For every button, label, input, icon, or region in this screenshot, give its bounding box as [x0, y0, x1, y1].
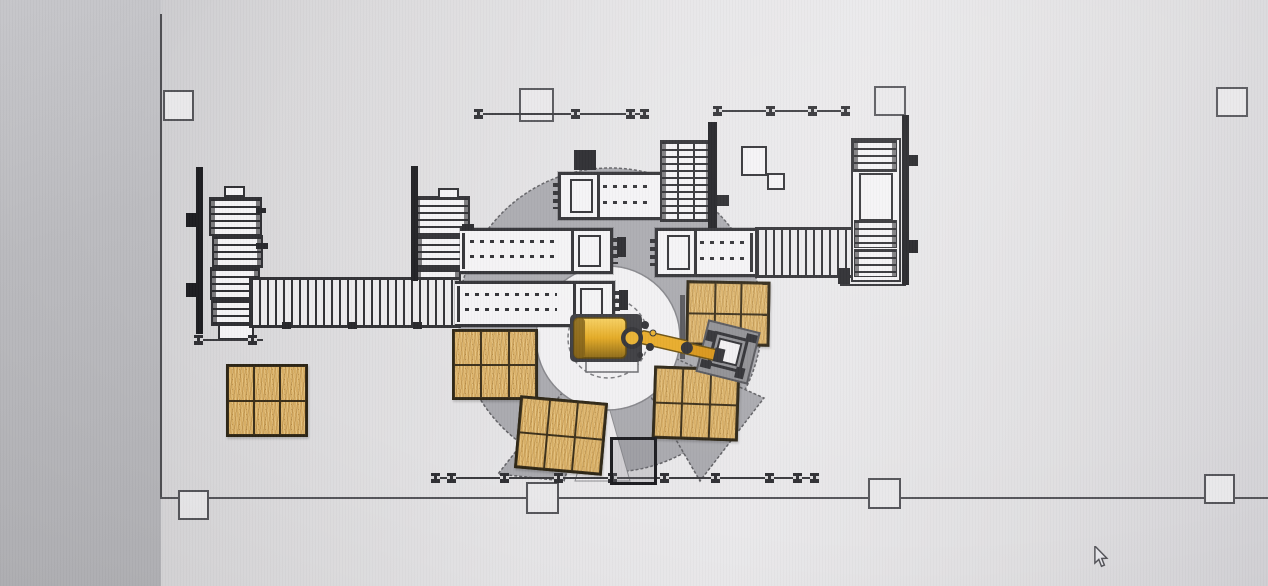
roller-unit-top-right — [660, 140, 712, 222]
station-motor — [617, 237, 626, 257]
machine-label-chip — [438, 188, 459, 199]
wood-board — [742, 315, 767, 344]
fence-post — [713, 106, 722, 116]
fence-post — [248, 335, 257, 345]
fence-post — [626, 109, 635, 119]
guard-bar — [186, 283, 199, 297]
fence-post — [765, 473, 774, 483]
guard-bar — [411, 166, 418, 281]
wood-board — [455, 332, 480, 364]
fence-post — [447, 473, 456, 483]
guard-bar — [186, 213, 199, 227]
pallet-magazine-left — [212, 235, 263, 268]
equipment-box — [741, 146, 767, 176]
safety-fence — [714, 110, 846, 112]
fence-post — [554, 473, 563, 483]
press-station-left-lower — [455, 281, 615, 327]
machine-label-chip — [224, 186, 245, 197]
wood-pallet-stack — [514, 395, 608, 475]
wood-board — [281, 402, 305, 435]
safety-fence — [476, 113, 645, 115]
cad-drawing-canvas[interactable] — [0, 0, 1268, 586]
building-column — [519, 88, 554, 122]
wood-pallet-stack — [685, 280, 770, 346]
wood-board — [715, 314, 740, 343]
drive-motor — [462, 224, 474, 230]
wood-board — [711, 371, 737, 404]
stacker-foot-line — [840, 284, 906, 286]
station-head — [655, 228, 697, 277]
building-wall-left — [160, 14, 162, 497]
station-body — [457, 286, 575, 322]
roller-bracket — [717, 195, 729, 206]
wood-pallet-stack — [652, 366, 740, 442]
equipment-box — [767, 173, 785, 190]
wood-board — [655, 403, 681, 436]
wood-board — [517, 433, 546, 468]
building-column — [163, 90, 194, 121]
building-column — [178, 490, 209, 520]
station-motor — [574, 150, 596, 170]
fence-post — [766, 106, 775, 116]
building-wall-bottom — [160, 497, 1268, 499]
wood-board — [455, 366, 480, 398]
fence-post — [810, 473, 819, 483]
wood-board — [709, 405, 735, 438]
wood-board — [689, 283, 714, 312]
guard-bar — [905, 155, 918, 166]
wood-board — [482, 366, 507, 398]
wood-board — [742, 284, 767, 313]
wood-board — [510, 366, 535, 398]
outside-building-area — [0, 0, 161, 586]
wood-board — [656, 369, 682, 402]
wood-board — [510, 332, 535, 364]
building-column — [1204, 474, 1235, 504]
building-column — [526, 482, 559, 514]
guard-bar — [905, 240, 918, 253]
guard-bar — [902, 115, 909, 285]
station-head — [573, 281, 615, 327]
fence-post — [711, 473, 720, 483]
fence-post — [808, 106, 817, 116]
building-column — [1216, 87, 1248, 117]
wood-board — [548, 401, 577, 436]
station-body — [695, 233, 753, 272]
station-motor — [619, 290, 628, 310]
wood-board — [229, 367, 253, 400]
station-body — [598, 177, 664, 215]
press-station-right — [655, 228, 755, 277]
wood-board — [520, 399, 549, 434]
wood-board — [255, 367, 279, 400]
building-column — [868, 478, 901, 509]
wood-board — [688, 314, 713, 343]
pallet-stop-bar — [680, 295, 685, 359]
station-head — [571, 228, 613, 274]
wood-pallet-stack — [226, 364, 308, 437]
drive-motor — [256, 243, 268, 249]
wood-board — [229, 402, 253, 435]
wood-board — [482, 332, 507, 364]
wood-board — [255, 402, 279, 435]
station-body — [462, 233, 573, 269]
fence-post — [474, 109, 483, 119]
conveyor-foot — [348, 322, 357, 329]
wood-board — [545, 435, 574, 470]
pallet-magazine-left — [209, 197, 262, 236]
press-station-left-upper — [460, 228, 613, 274]
fence-post — [500, 473, 509, 483]
wood-board — [716, 284, 741, 313]
drive-motor — [256, 208, 266, 213]
wood-board — [576, 403, 605, 438]
guard-bar — [196, 167, 203, 334]
safety-gate — [610, 437, 657, 485]
wood-board — [573, 438, 602, 473]
fence-post — [793, 473, 802, 483]
fence-post — [194, 335, 203, 345]
stacker-unit-right — [851, 138, 901, 282]
fence-post — [571, 109, 580, 119]
fence-post — [431, 473, 440, 483]
wood-board — [683, 370, 709, 403]
monitor-photo — [0, 0, 1268, 586]
wood-board — [281, 367, 305, 400]
stacker-foot — [838, 268, 850, 284]
guard-bar — [708, 122, 717, 228]
fence-post — [841, 106, 850, 116]
fence-post — [640, 109, 649, 119]
wood-board — [682, 404, 708, 437]
conveyor-foot — [282, 322, 291, 329]
press-station-top — [558, 172, 666, 220]
infeed-slat-conveyor — [249, 277, 461, 328]
wood-pallet-stack — [452, 329, 538, 400]
fence-post — [660, 473, 669, 483]
building-column — [874, 86, 906, 116]
conveyor-foot — [413, 322, 422, 329]
station-head — [558, 172, 600, 220]
